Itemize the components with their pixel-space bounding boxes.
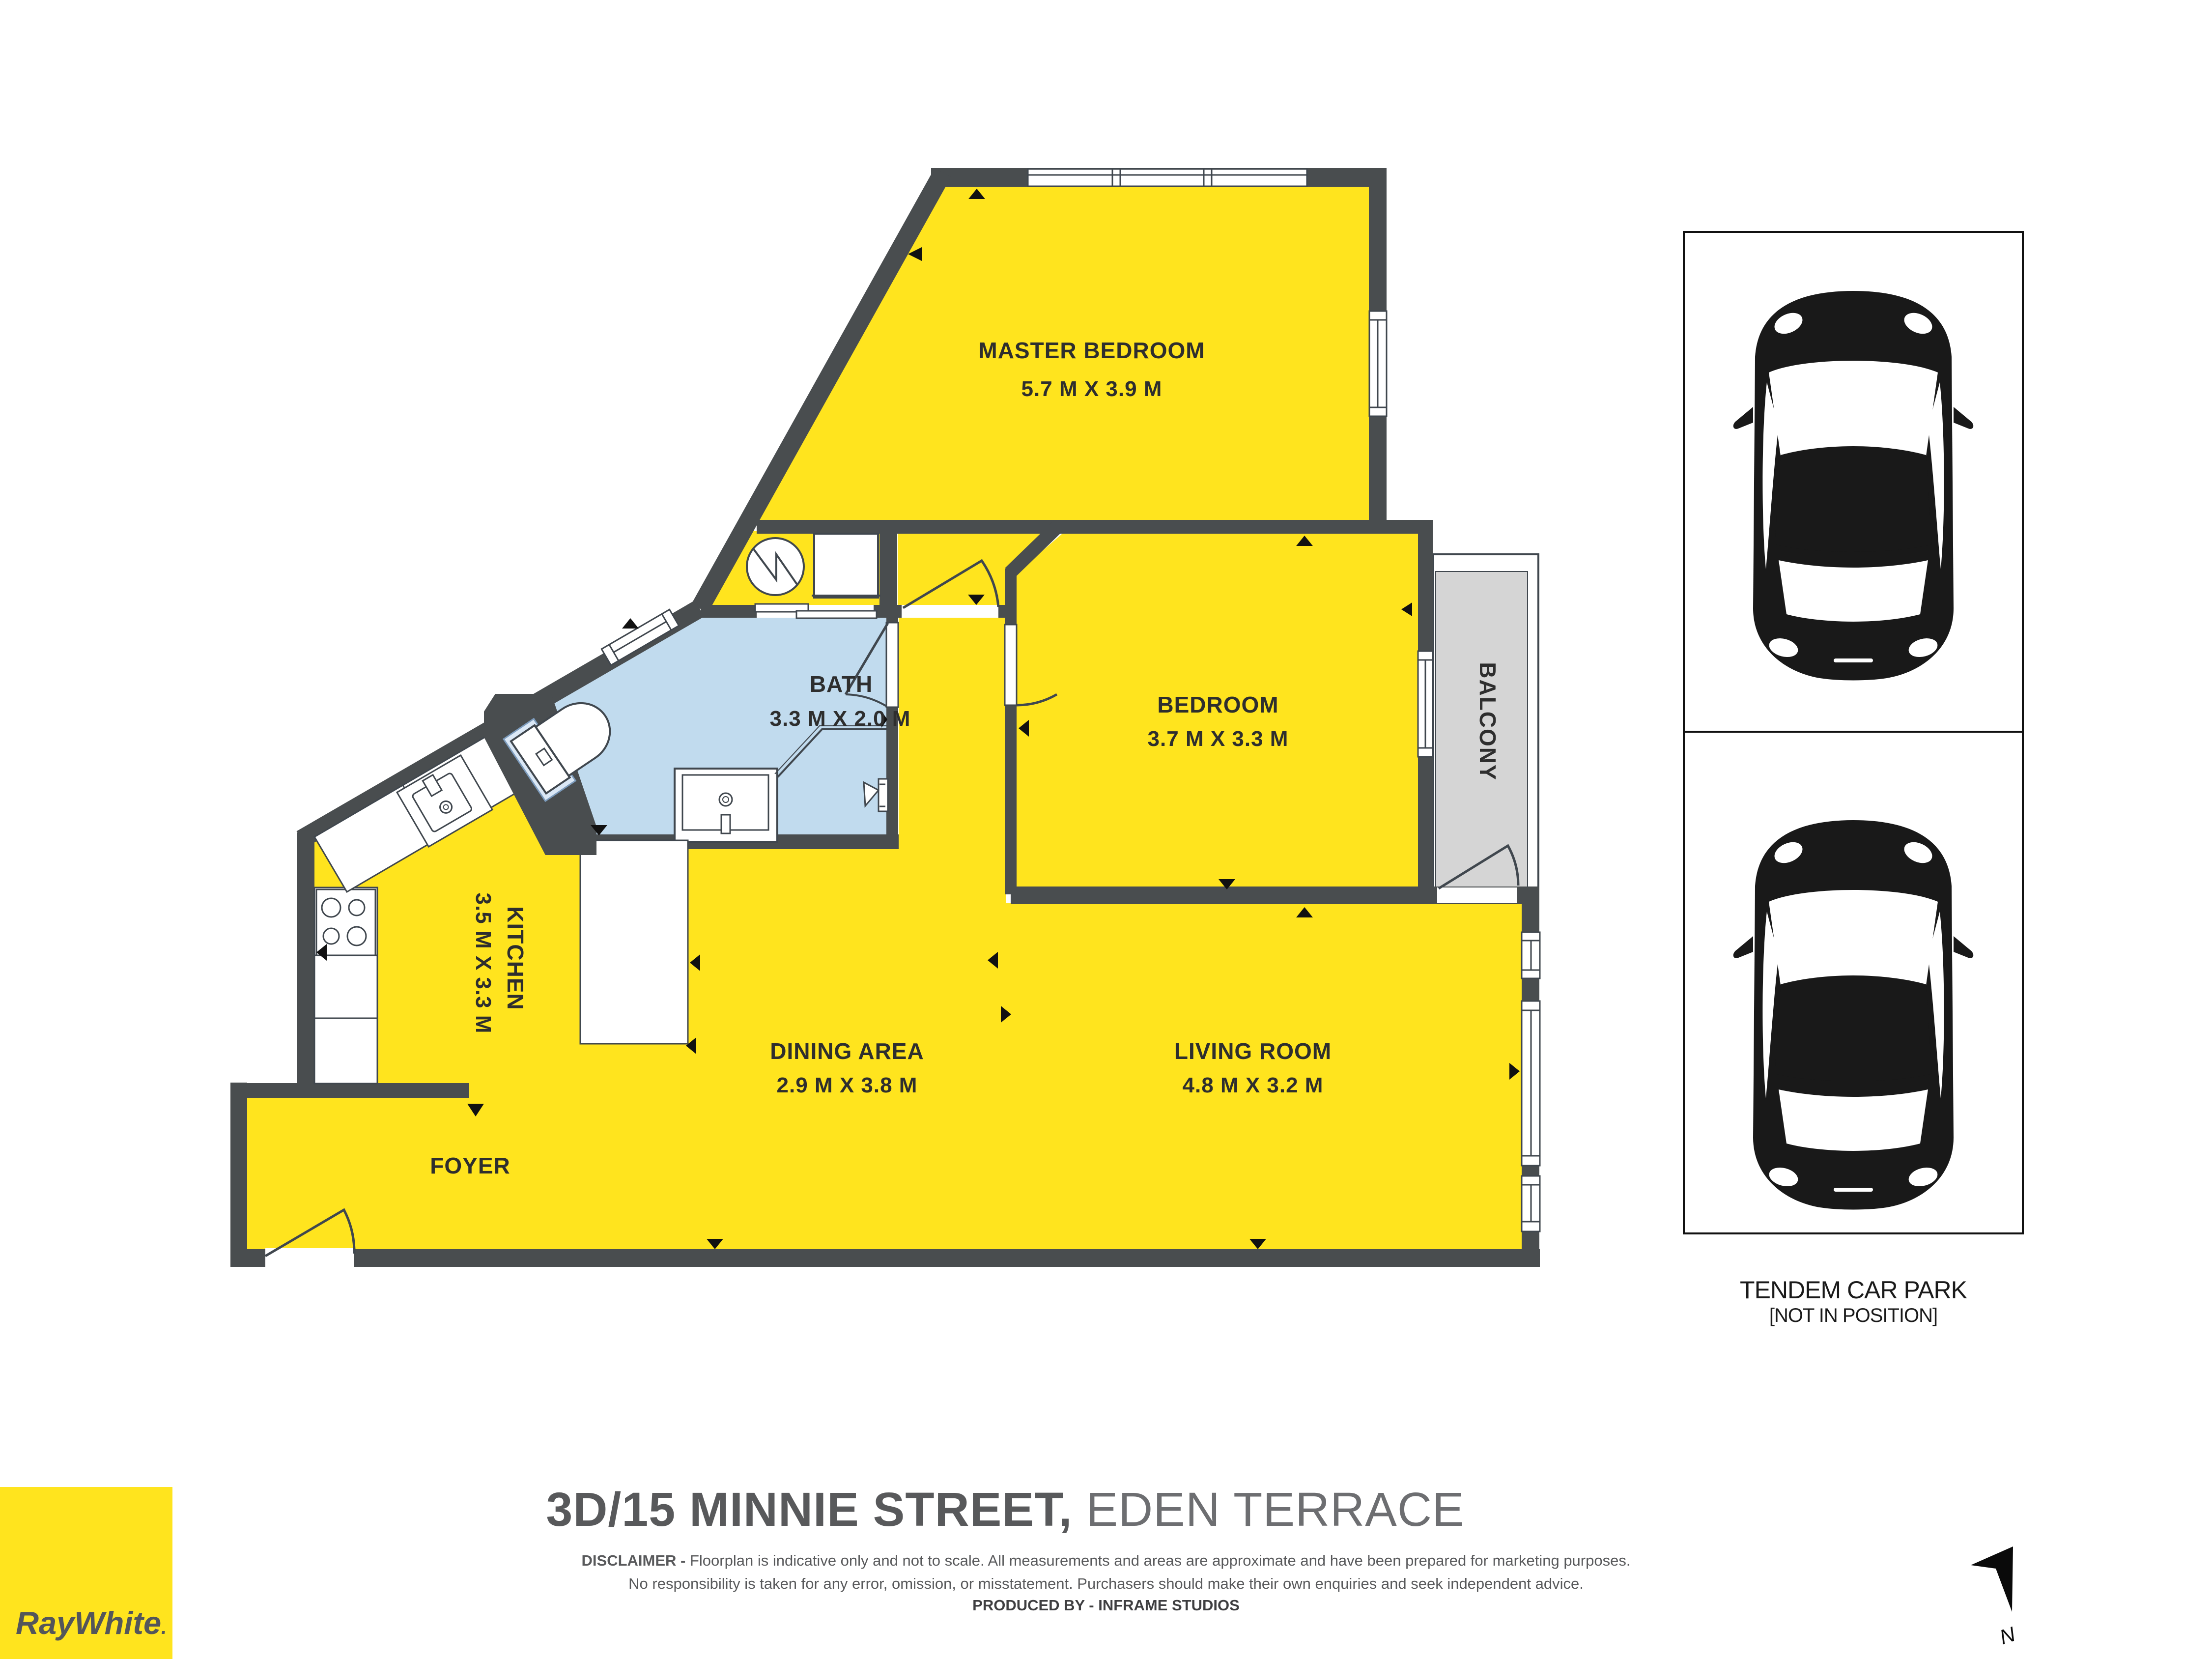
svg-text:RayWhite.: RayWhite.: [16, 1605, 167, 1641]
svg-text:4.8 M X 3.2 M: 4.8 M X 3.2 M: [1183, 1073, 1324, 1097]
svg-text:LIVING ROOM: LIVING ROOM: [1174, 1038, 1332, 1064]
svg-text:MASTER BEDROOM: MASTER BEDROOM: [978, 338, 1205, 363]
svg-text:2.9 M X 3.8 M: 2.9 M X 3.8 M: [777, 1073, 918, 1097]
svg-text:5.7 M X 3.9 M: 5.7 M X 3.9 M: [1021, 377, 1163, 401]
svg-text:3D/15 MINNIE STREET, EDEN TERR: 3D/15 MINNIE STREET, EDEN TERRACE: [546, 1483, 1464, 1536]
svg-text:KITCHEN: KITCHEN: [503, 906, 528, 1010]
svg-text:BATH: BATH: [810, 671, 873, 697]
svg-text:BALCONY: BALCONY: [1475, 662, 1501, 780]
svg-text:3.5 M X 3.3 M: 3.5 M X 3.3 M: [471, 893, 495, 1034]
svg-text:PRODUCED BY - INFRAME STUDIOS: PRODUCED BY - INFRAME STUDIOS: [972, 1597, 1240, 1614]
svg-text:[NOT IN POSITION]: [NOT IN POSITION]: [1769, 1305, 1937, 1326]
svg-text:DISCLAIMER - Floorplan is indi: DISCLAIMER - Floorplan is indicative onl…: [582, 1552, 1631, 1569]
svg-text:3.7 M X 3.3 M: 3.7 M X 3.3 M: [1148, 727, 1289, 751]
svg-text:3.3 M X 2.0 M: 3.3 M X 2.0 M: [770, 707, 911, 731]
svg-text:FOYER: FOYER: [430, 1153, 510, 1178]
svg-text:DINING AREA: DINING AREA: [770, 1038, 924, 1064]
svg-text:BEDROOM: BEDROOM: [1157, 692, 1278, 717]
svg-text:No responsibility is taken for: No responsibility is taken for any error…: [628, 1575, 1584, 1592]
svg-text:TENDEM CAR PARK: TENDEM CAR PARK: [1740, 1276, 1967, 1304]
